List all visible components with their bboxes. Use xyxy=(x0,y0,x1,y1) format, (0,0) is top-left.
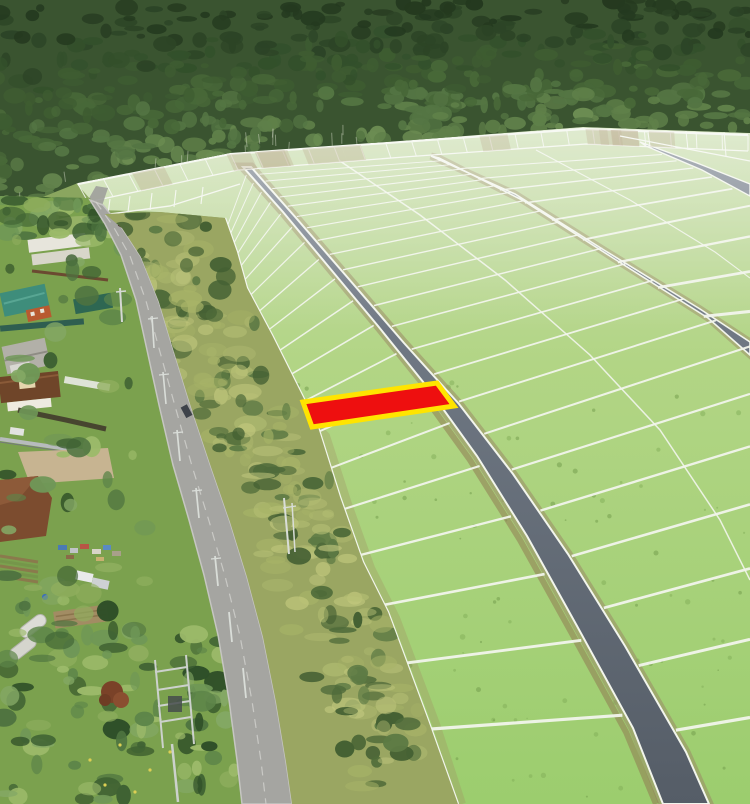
transformer-box xyxy=(168,696,182,712)
aerial-photo-canvas xyxy=(0,0,750,804)
aerial-photo xyxy=(0,0,750,804)
power-pole-crossarm xyxy=(116,291,126,292)
red-tree xyxy=(113,692,129,708)
red-tree xyxy=(99,694,111,706)
